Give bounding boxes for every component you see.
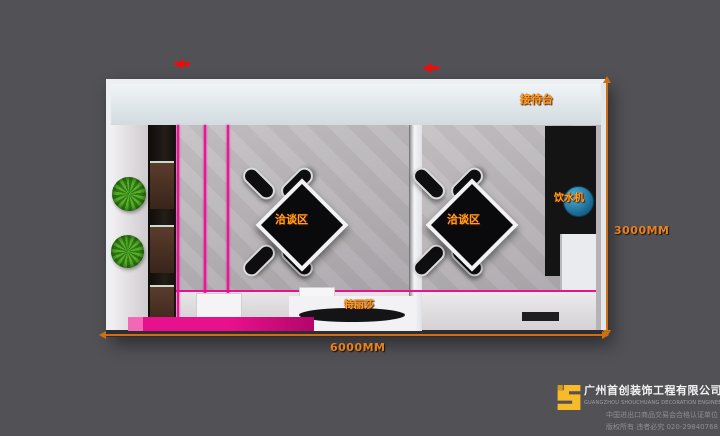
cabinet-strip — [522, 312, 559, 321]
arrow-left-icon — [99, 331, 106, 339]
brand-board-label: 特丽莎 — [344, 301, 374, 311]
negotiation-area-label: 洽谈区 — [447, 214, 480, 225]
design-presentation-canvas: { "plan": { "reception_label": "接待台", "n… — [0, 0, 720, 436]
height-dimension-label: 3000MM — [614, 224, 670, 237]
horizontal-dimension-line — [103, 334, 606, 336]
planter-column — [111, 125, 148, 331]
view-direction-marker-icon — [422, 63, 440, 73]
pink-wall-stripe — [177, 125, 179, 317]
company-name-cn: 广州首创装饰工程有限公司 — [584, 382, 718, 398]
company-logo-icon — [556, 384, 582, 411]
pink-wall-stripe — [204, 125, 206, 317]
company-text-lines: 广州首创装饰工程有限公司 GUANGZHOU SHOUCHUANG DECORA… — [584, 382, 718, 432]
display-plinth — [196, 293, 242, 319]
booth-plan-rendering: 接待台 洽谈区 洽谈区 饮水机 特丽莎 — [106, 79, 606, 336]
pink-platform — [128, 317, 314, 331]
shelf-box — [150, 161, 174, 209]
width-dimension-label: 6000MM — [330, 341, 386, 354]
pink-trim-line — [176, 290, 596, 292]
display-shelf-column — [148, 125, 176, 333]
shelf-box — [150, 225, 174, 273]
company-name-en: GUANGZHOU SHOUCHUANG DECORATION ENGINEER… — [584, 400, 718, 406]
pink-wall-stripe — [227, 125, 229, 317]
negotiation-area-label: 洽谈区 — [275, 214, 308, 225]
vertical-dimension-line — [606, 81, 608, 335]
view-direction-marker-icon — [173, 59, 191, 69]
bottom-counter — [421, 292, 596, 331]
company-signature-block: 广州首创装饰工程有限公司 GUANGZHOU SHOUCHUANG DECORA… — [556, 382, 718, 428]
plant-icon — [112, 177, 146, 211]
certification-text: 中国进出口商品交易会合格认证单位 — [584, 410, 718, 420]
marker-tail — [182, 62, 190, 66]
water-dispenser-label: 饮水机 — [554, 194, 584, 204]
reception-label: 接待台 — [520, 94, 553, 105]
plant-icon — [111, 235, 144, 268]
copyright-text: 版权所有 违者必究 020-29840768 — [584, 422, 718, 432]
arrow-up-icon — [603, 76, 611, 83]
arrow-right-icon — [602, 331, 609, 339]
marker-tail — [431, 66, 439, 70]
